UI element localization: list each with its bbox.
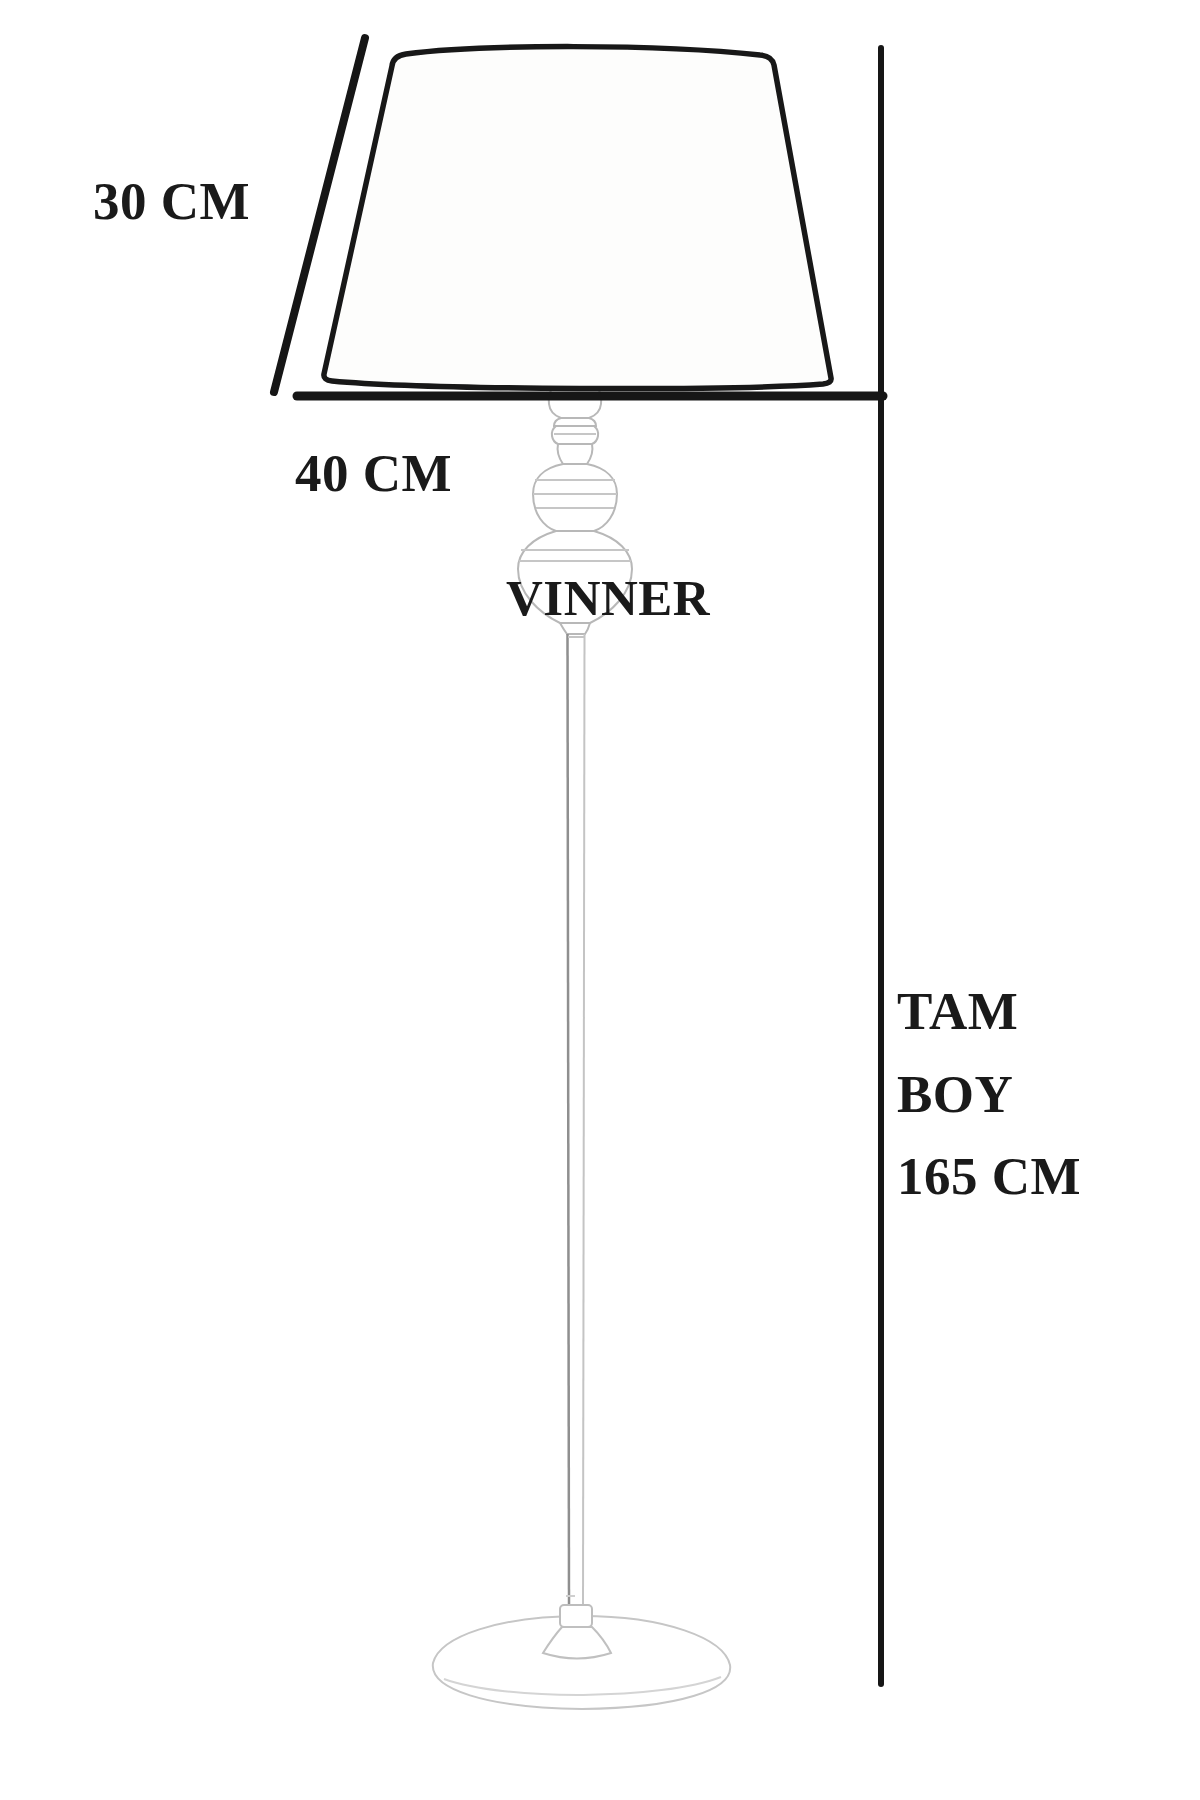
baluster-ring-1 xyxy=(554,418,596,426)
brand-text: VINNER xyxy=(506,572,710,626)
label-total-height-line3: 165 CM xyxy=(897,1149,1081,1205)
pole-collar xyxy=(560,1605,592,1627)
floor-lamp-drawing xyxy=(0,0,1200,1800)
pole-edge-left xyxy=(568,634,570,1607)
label-total-height-line2: BOY xyxy=(897,1067,1013,1123)
lampshade-outline xyxy=(324,47,831,389)
product-dimension-diagram: 30 CM 40 CM VINNER TAM BOY 165 CM xyxy=(0,0,1200,1800)
label-shade-slant-height: 30 CM xyxy=(93,174,250,230)
baluster-waist xyxy=(558,444,593,464)
mid-bulb xyxy=(533,464,617,531)
pole-edge-right xyxy=(583,634,585,1607)
label-total-height-line1: TAM xyxy=(897,984,1018,1040)
label-shade-diameter: 40 CM xyxy=(295,446,452,502)
